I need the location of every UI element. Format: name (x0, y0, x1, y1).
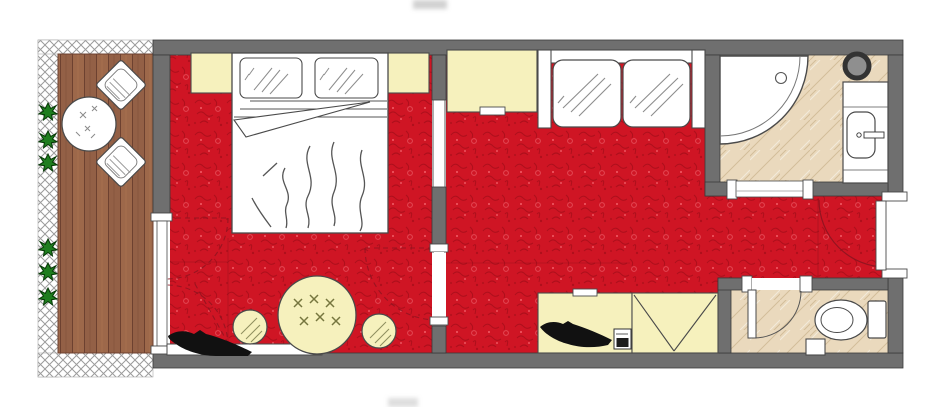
wc-top-wall-a (718, 278, 744, 290)
wardrobe (447, 50, 537, 112)
wc-top-wall-b (812, 278, 888, 290)
toilet (815, 300, 886, 340)
partition-lower (432, 326, 446, 353)
partition-mid (432, 187, 446, 244)
entry-door-leaf (876, 201, 886, 270)
bathroom-left-wall (705, 55, 720, 196)
floor-plan-drawing (0, 0, 940, 407)
bathroom-bottom-wall-b (811, 182, 888, 196)
sofa-two-seat (538, 50, 705, 128)
minibar-safe (614, 329, 631, 349)
right-wall-upper (888, 55, 903, 192)
desk-knob (573, 289, 597, 296)
pillow (240, 58, 302, 98)
double-bed (232, 53, 388, 233)
waste-bin (806, 339, 825, 355)
wc-door-leaf (748, 290, 756, 338)
shower-drain (776, 73, 787, 84)
stool (362, 314, 396, 348)
balcony-table (62, 97, 116, 151)
stool (233, 310, 267, 344)
washbasin-vanity (843, 82, 888, 183)
bathroom-bottom-wall-a (705, 182, 729, 196)
floor-plan-page (0, 0, 940, 407)
nightstand (387, 53, 429, 93)
hall-carpet (705, 196, 888, 278)
right-wall-lower (888, 278, 903, 353)
wood-deck (58, 54, 153, 353)
round-table (278, 276, 356, 354)
pillow (315, 58, 378, 98)
balcony (38, 40, 153, 377)
partition-upper (432, 55, 446, 100)
round-fixture (845, 54, 869, 78)
luggage-rack (632, 293, 718, 353)
balcony-wall (153, 55, 170, 213)
wardrobe-handle (480, 107, 505, 115)
faucet (864, 132, 884, 138)
nightstand (191, 53, 233, 93)
